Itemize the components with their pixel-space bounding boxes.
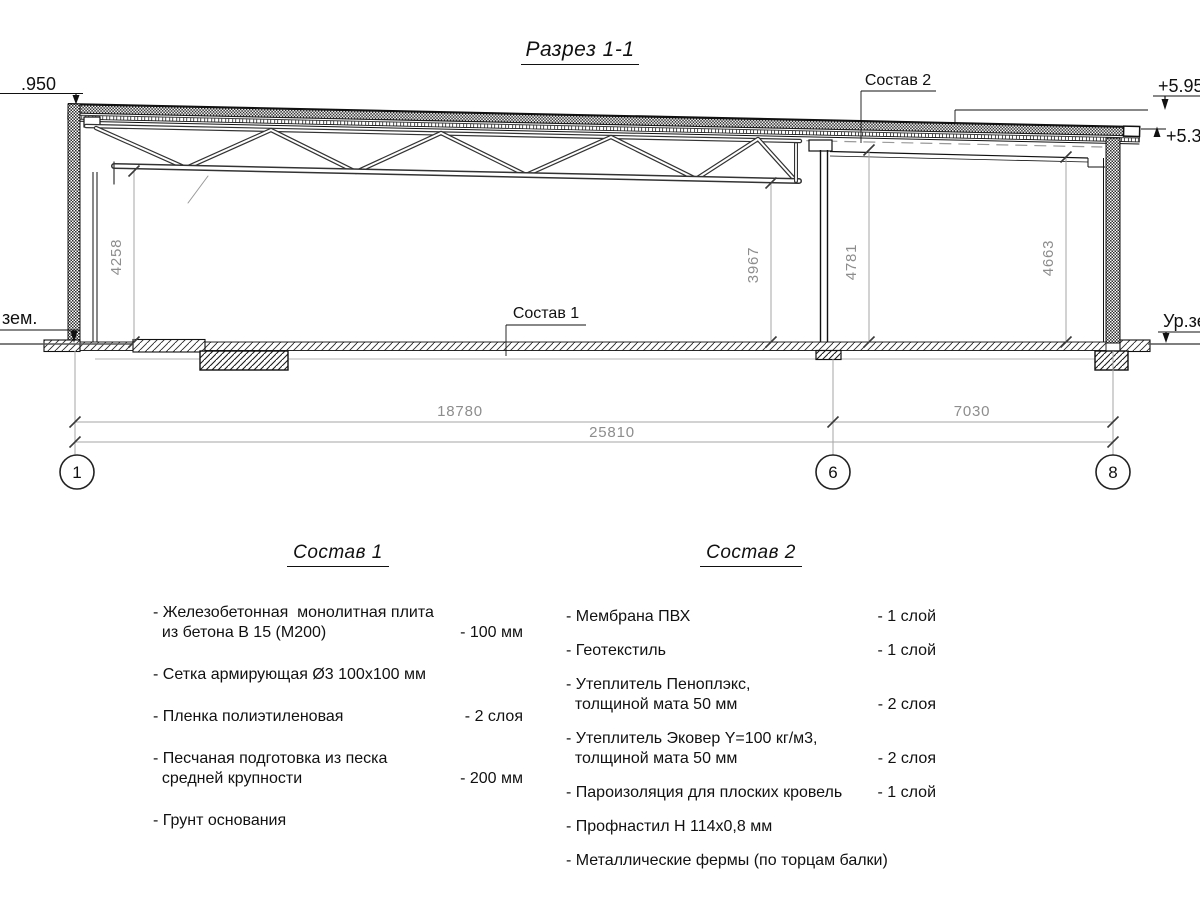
material-quantity: - 200 мм — [452, 769, 523, 789]
material-quantity: - 1 слой — [870, 783, 936, 803]
material-item: - Утеплитель Пеноплэкс, толщиной мата 50… — [566, 675, 936, 715]
material-quantity: - 1 слой — [870, 641, 936, 661]
ground-level-right: Ур.зе — [1148, 311, 1200, 344]
material-name: - Песчаная подготовка из песка средней к… — [153, 749, 387, 789]
material-quantity: - 2 слоя — [870, 749, 936, 769]
middle-wall — [809, 140, 832, 342]
axis-6-label: 6 — [828, 463, 837, 482]
beam-seat — [809, 140, 832, 151]
hdim-25810: 25810 — [589, 424, 635, 441]
down-arrow-icon — [1162, 99, 1169, 110]
material-item: - Пленка полиэтиленовая- 2 слоя — [153, 707, 523, 727]
material-quantity: - 1 слой — [870, 607, 936, 627]
down-arrow-icon — [73, 95, 80, 105]
material-name: - Мембрана ПВХ — [566, 607, 690, 627]
ground-label-right: Ур.зе — [1163, 311, 1200, 331]
material-item: - Утеплитель Эковер Y=100 кг/м3, толщино… — [566, 729, 936, 769]
elevation-mark-left: .950 — [0, 74, 83, 105]
material-name: - Пленка полиэтиленовая — [153, 707, 343, 727]
material-list-heading: Состав 1 — [153, 542, 523, 567]
material-item: - Геотекстиль- 1 слой — [566, 641, 936, 661]
roof-edge-cap — [1124, 126, 1140, 136]
ground-level-left: зем. — [0, 308, 133, 344]
material-list-sostav2: Состав 2 - Мембрана ПВХ- 1 слой- Геотекс… — [566, 542, 936, 885]
truss-leader-mark — [188, 176, 208, 203]
material-list-sostav1: Состав 1 - Железобетонная монолитная пли… — [153, 542, 523, 853]
axis-8-label: 8 — [1108, 463, 1117, 482]
callout-sostav2-label: Состав 2 — [865, 72, 931, 89]
up-arrow-icon — [1154, 127, 1161, 138]
vdim-3967: 3967 — [745, 247, 762, 284]
footing-toe-right — [1120, 340, 1150, 352]
drawing-sheet: зем. Ур.зе .950 +5.95 — [0, 0, 1200, 900]
material-name: - Железобетонная монолитная плита из бет… — [153, 603, 434, 643]
material-item: - Грунт основания — [153, 811, 523, 831]
elevation-mark-right-top: +5.95 — [955, 76, 1200, 122]
down-arrow-icon — [1163, 333, 1170, 343]
material-name: - Геотекстиль — [566, 641, 666, 661]
elevation-mark-right-mid: +5.38 — [1141, 126, 1200, 146]
foundation-left — [200, 351, 288, 370]
material-name: - Металлические фермы (по торцам балки) — [566, 851, 888, 871]
left-wall — [68, 104, 97, 344]
material-name: - Профнастил Н 114х0,8 мм — [566, 817, 772, 837]
material-item: - Сетка армирующая Ø3 100х100 мм — [153, 665, 523, 685]
material-name: - Сетка армирующая Ø3 100х100 мм — [153, 665, 426, 685]
vdim-4781: 4781 — [843, 244, 860, 281]
material-name: - Пароизоляция для плоских кровель — [566, 783, 842, 803]
elevation-right-mid-value: +5.38 — [1166, 126, 1200, 146]
material-item: - Мембрана ПВХ- 1 слой — [566, 607, 936, 627]
material-quantity: - 2 слоя — [457, 707, 523, 727]
foundation-middle — [816, 351, 841, 360]
callout-sostav1-label: Состав 1 — [513, 305, 579, 322]
axis-1-label: 1 — [72, 463, 81, 482]
vdim-4663: 4663 — [1040, 240, 1057, 277]
material-quantity: - 100 мм — [452, 623, 523, 643]
foundation-right — [1095, 351, 1128, 370]
elevation-right-top-value: +5.95 — [1158, 76, 1200, 96]
drawing-title-text: Разрез 1-1 — [521, 38, 638, 65]
grid-bubble-6: 6 — [816, 455, 850, 489]
material-name: - Утеплитель Эковер Y=100 кг/м3, толщино… — [566, 729, 817, 769]
floor-slab — [44, 340, 1150, 371]
slab-edge-thickening — [133, 340, 205, 353]
material-item: - Пароизоляция для плоских кровель- 1 сл… — [566, 783, 936, 803]
material-item: - Профнастил Н 114х0,8 мм — [566, 817, 936, 837]
material-item: - Металлические фермы (по торцам балки) — [566, 851, 936, 871]
ground-label-left: зем. — [2, 308, 37, 328]
material-items: - Железобетонная монолитная плита из бет… — [153, 603, 523, 831]
material-items: - Мембрана ПВХ- 1 слой- Геотекстиль- 1 с… — [566, 607, 936, 871]
hdim-7030: 7030 — [954, 403, 991, 420]
material-item: - Железобетонная монолитная плита из бет… — [153, 603, 523, 643]
grid-bubble-1: 1 — [60, 455, 94, 489]
drawing-title: Разрез 1-1 — [460, 38, 700, 65]
hdim-18780: 18780 — [437, 403, 483, 420]
material-list-heading: Состав 2 — [566, 542, 936, 567]
material-name: - Утеплитель Пеноплэкс, толщиной мата 50… — [566, 675, 750, 715]
vdim-4258: 4258 — [108, 239, 125, 276]
right-wall — [1104, 138, 1121, 343]
grid-bubble-8: 8 — [1096, 455, 1130, 489]
material-quantity: - 2 слоя — [870, 695, 936, 715]
material-name: - Грунт основания — [153, 811, 286, 831]
footing-toe-left — [44, 340, 80, 352]
material-item: - Песчаная подготовка из песка средней к… — [153, 749, 523, 789]
elevation-left-value: .950 — [21, 74, 56, 94]
